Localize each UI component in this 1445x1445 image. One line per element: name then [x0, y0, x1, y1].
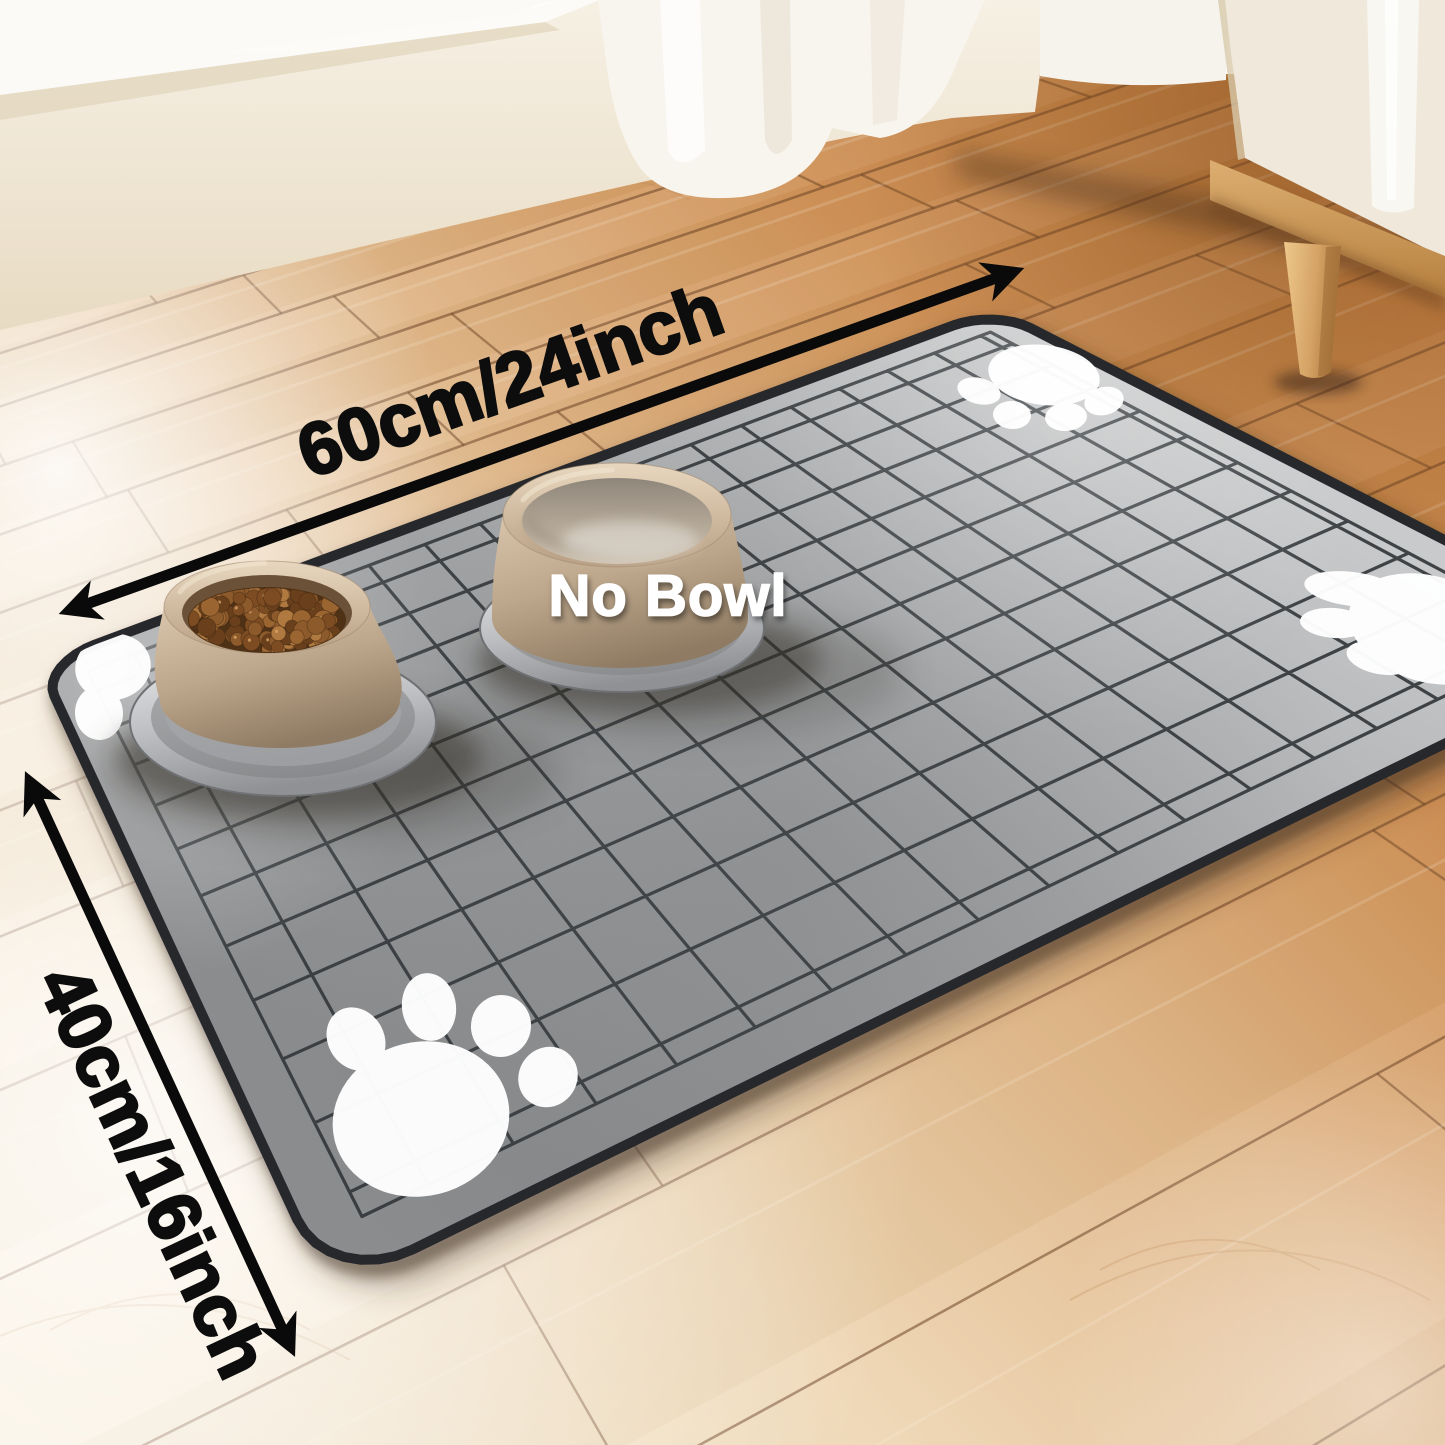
pet-mat-scene: 60cm/24inch 40cm/16inch No Bowl — [0, 0, 1445, 1445]
product-photo: 60cm/24inch 40cm/16inch No Bowl — [0, 0, 1445, 1445]
no-bowl-label: No Bowl — [549, 563, 788, 628]
